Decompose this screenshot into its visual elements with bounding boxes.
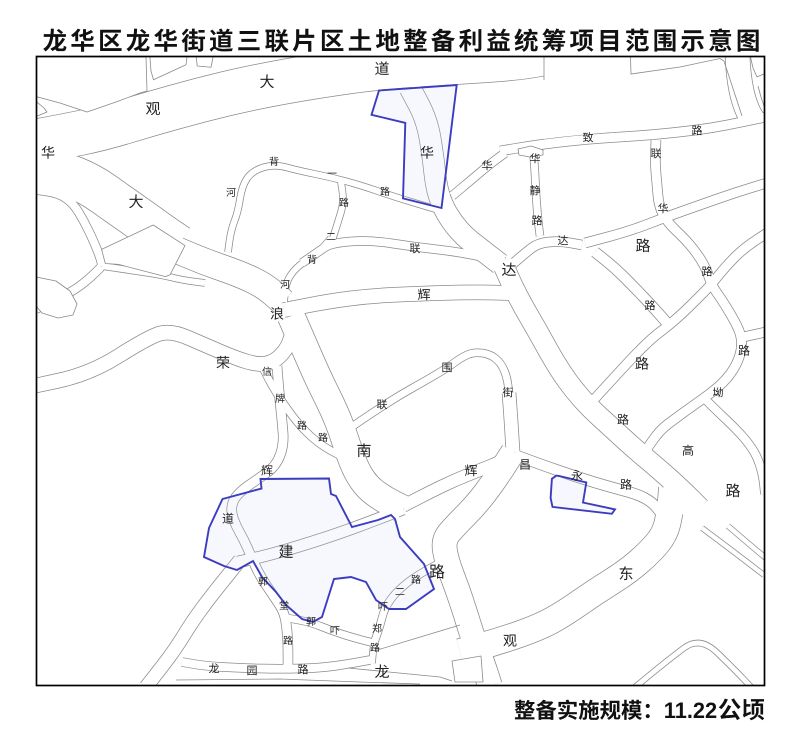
svg-text:11.22: 11.22 [664, 698, 717, 723]
